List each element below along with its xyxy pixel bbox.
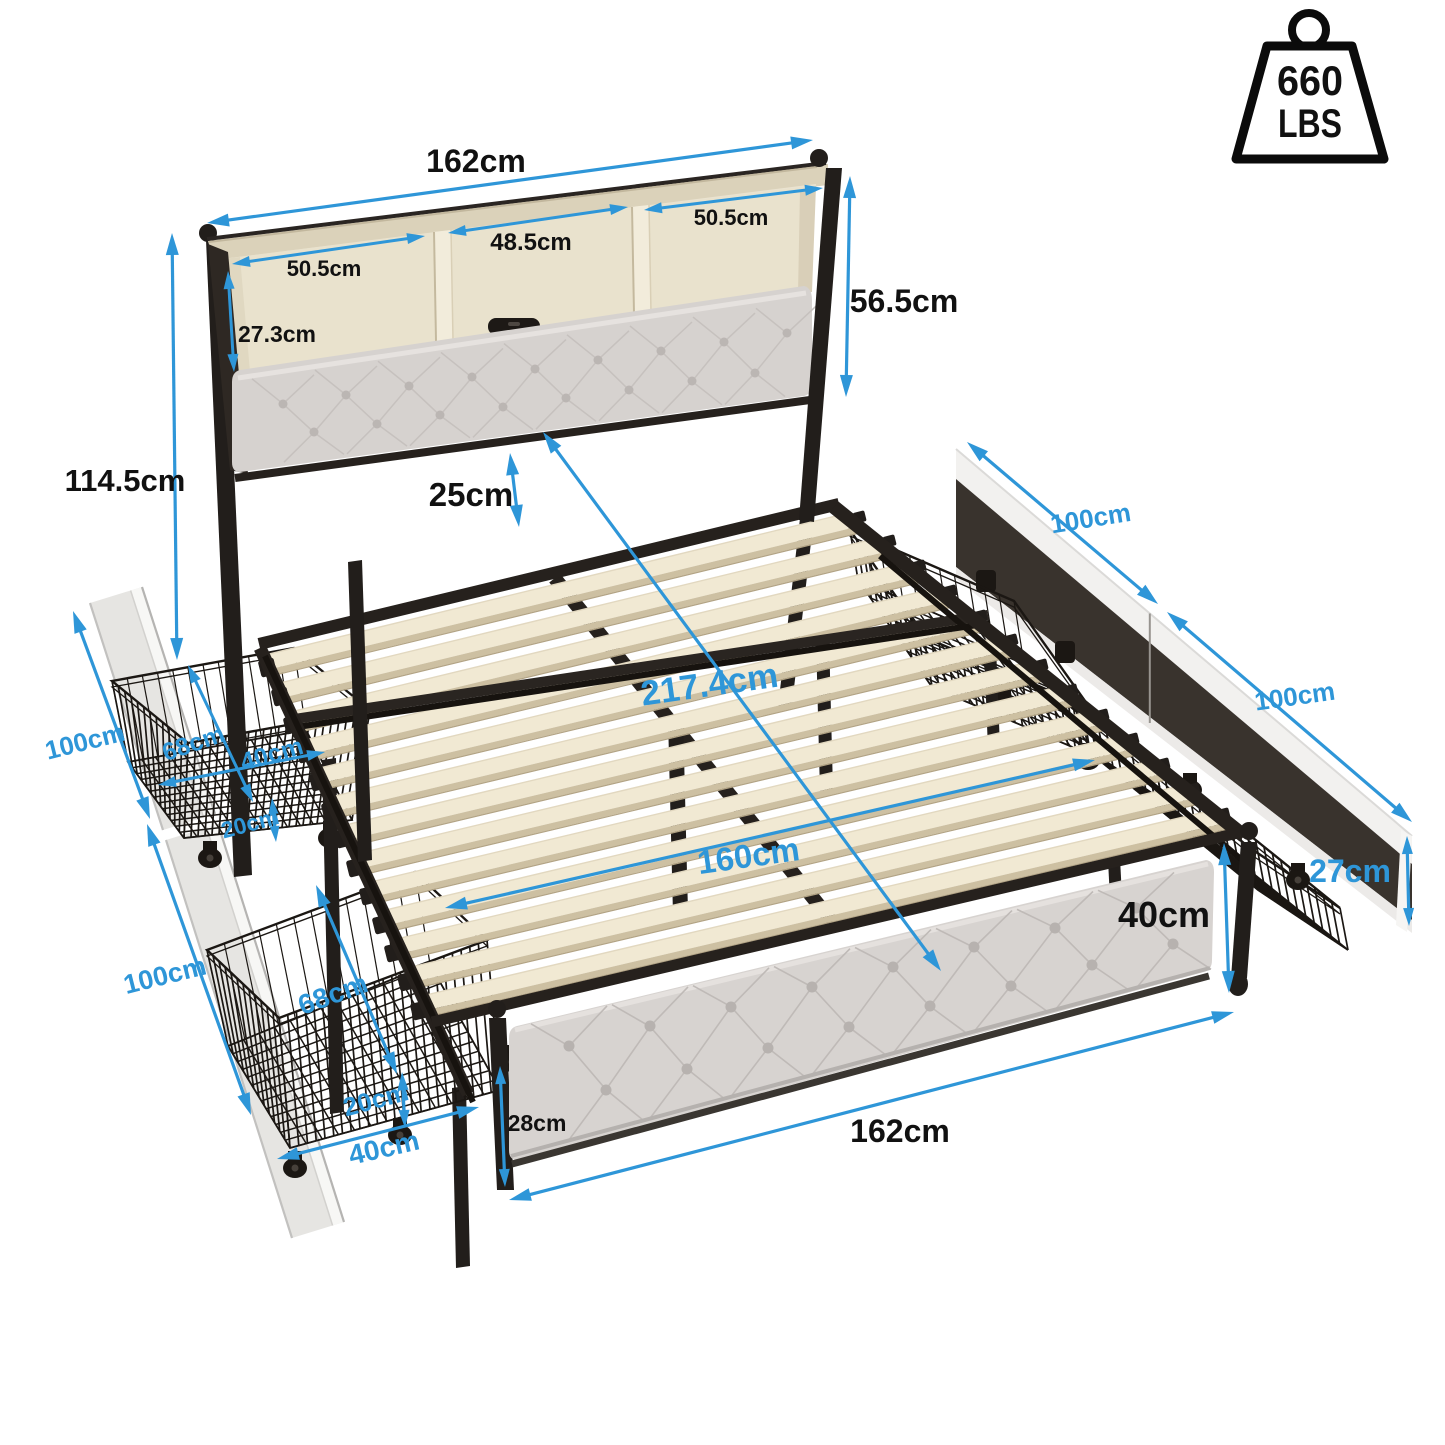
svg-text:114.5cm: 114.5cm	[65, 463, 186, 498]
svg-text:162cm: 162cm	[850, 1113, 950, 1149]
svg-text:56.5cm: 56.5cm	[850, 283, 959, 319]
svg-text:LBS: LBS	[1278, 102, 1342, 146]
svg-text:50.5cm: 50.5cm	[287, 256, 362, 281]
svg-text:50.5cm: 50.5cm	[694, 205, 769, 230]
svg-text:660: 660	[1277, 57, 1343, 104]
svg-text:28cm: 28cm	[508, 1110, 567, 1136]
svg-text:27cm: 27cm	[1309, 853, 1391, 889]
svg-text:25cm: 25cm	[429, 476, 513, 513]
svg-text:27.3cm: 27.3cm	[238, 321, 316, 347]
svg-text:40cm: 40cm	[1118, 894, 1210, 935]
svg-text:48.5cm: 48.5cm	[490, 229, 571, 256]
svg-text:162cm: 162cm	[426, 143, 526, 179]
